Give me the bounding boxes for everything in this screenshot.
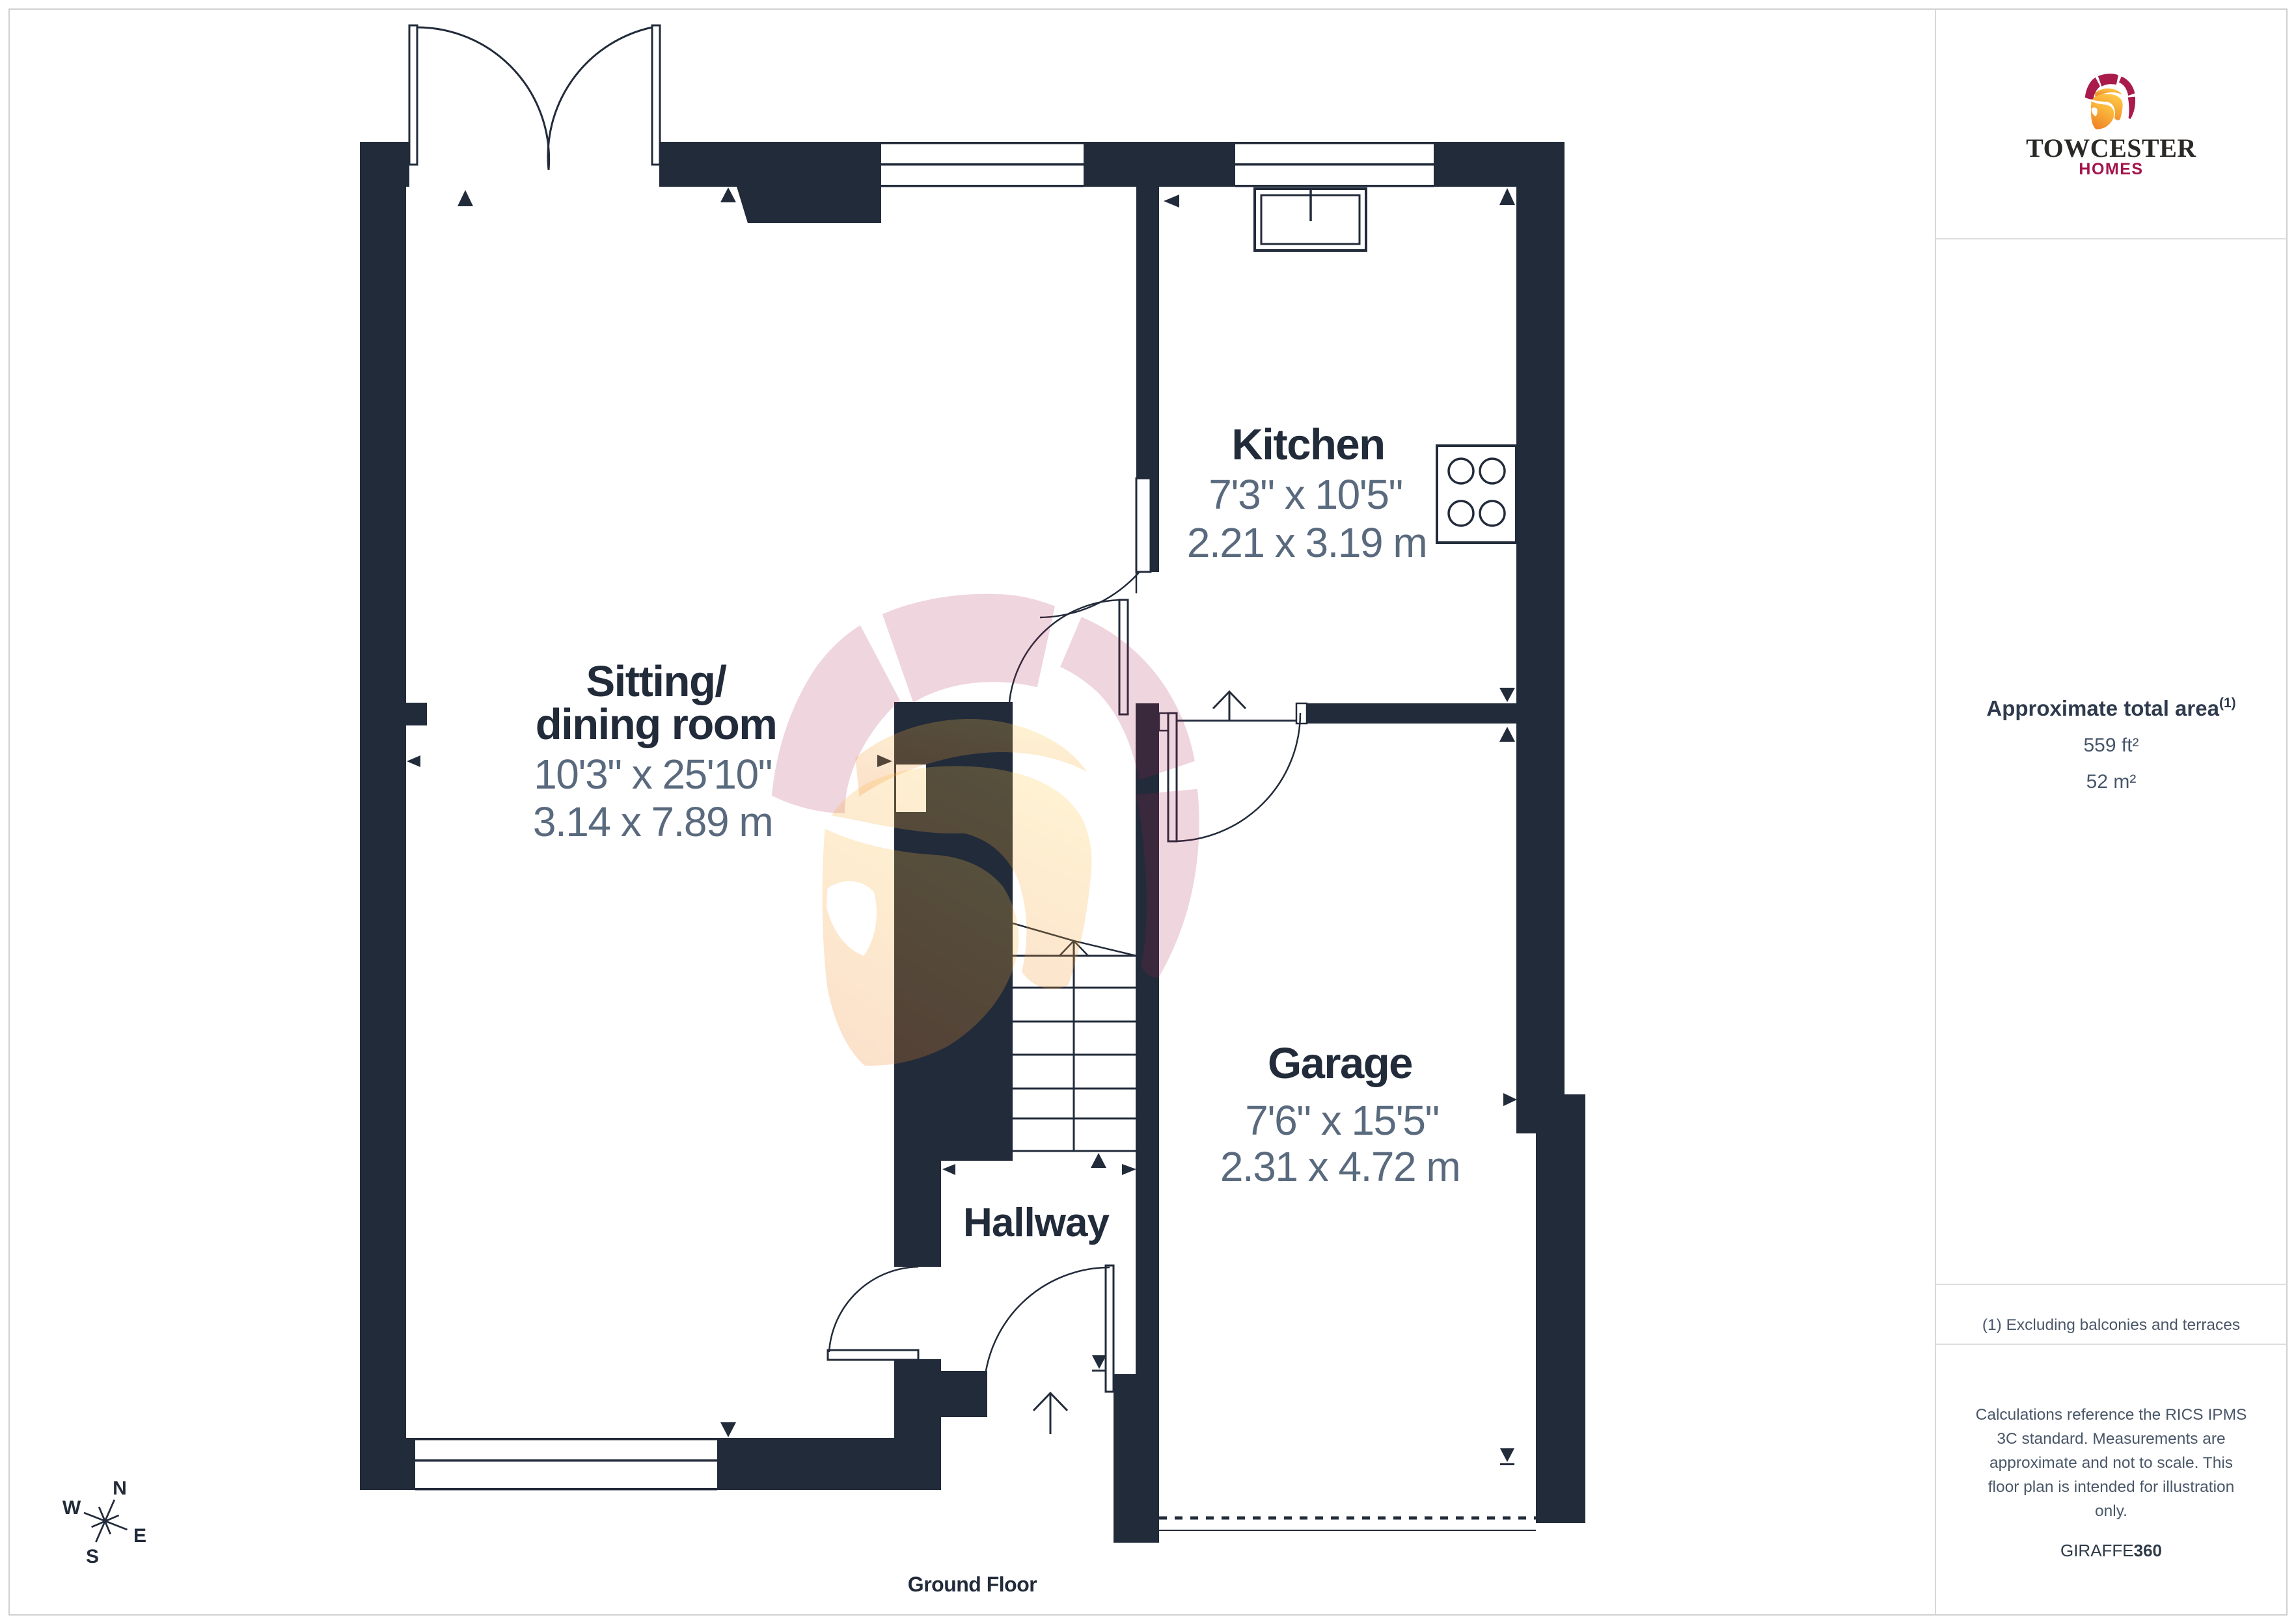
svg-text:dining room: dining room	[536, 700, 777, 749]
svg-text:HOMES: HOMES	[2079, 160, 2143, 178]
svg-text:Approximate total area(1): Approximate total area(1)	[1986, 696, 2235, 720]
svg-text:(1) Excluding balconies and te: (1) Excluding balconies and terraces	[1982, 1316, 2240, 1334]
svg-text:7'6" x 15'5": 7'6" x 15'5"	[1245, 1097, 1438, 1144]
svg-text:Garage: Garage	[1268, 1039, 1412, 1088]
svg-text:Hallway: Hallway	[963, 1200, 1110, 1245]
svg-text:Calculations reference the RIC: Calculations reference the RICS IPMS	[1976, 1406, 2247, 1424]
svg-text:2.21 x 3.19 m: 2.21 x 3.19 m	[1187, 519, 1427, 566]
svg-text:E: E	[133, 1525, 146, 1547]
svg-text:Kitchen: Kitchen	[1231, 420, 1384, 469]
svg-text:S: S	[86, 1546, 99, 1567]
svg-text:3C standard. Measurements are: 3C standard. Measurements are	[1997, 1430, 2225, 1448]
svg-text:W: W	[62, 1497, 81, 1519]
svg-text:10'3" x 25'10": 10'3" x 25'10"	[534, 751, 772, 798]
svg-text:2.31 x 4.72 m: 2.31 x 4.72 m	[1220, 1143, 1460, 1190]
svg-text:3.14 x 7.89 m: 3.14 x 7.89 m	[533, 798, 772, 845]
svg-text:559 ft²: 559 ft²	[2083, 735, 2139, 756]
svg-text:approximate and not to scale.: approximate and not to scale. This	[1989, 1454, 2233, 1472]
svg-text:TOWCESTER: TOWCESTER	[2026, 133, 2196, 163]
svg-text:only.: only.	[2095, 1502, 2127, 1520]
svg-text:Sitting/: Sitting/	[586, 657, 726, 706]
svg-text:N: N	[113, 1478, 127, 1499]
svg-text:52 m²: 52 m²	[2086, 771, 2137, 792]
svg-text:floor plan is intended for ill: floor plan is intended for illustration	[1988, 1478, 2235, 1496]
svg-text:7'3" x 10'5": 7'3" x 10'5"	[1209, 471, 1402, 518]
svg-text:GIRAFFE360: GIRAFFE360	[2060, 1541, 2162, 1560]
svg-text:Ground Floor: Ground Floor	[908, 1573, 1037, 1596]
